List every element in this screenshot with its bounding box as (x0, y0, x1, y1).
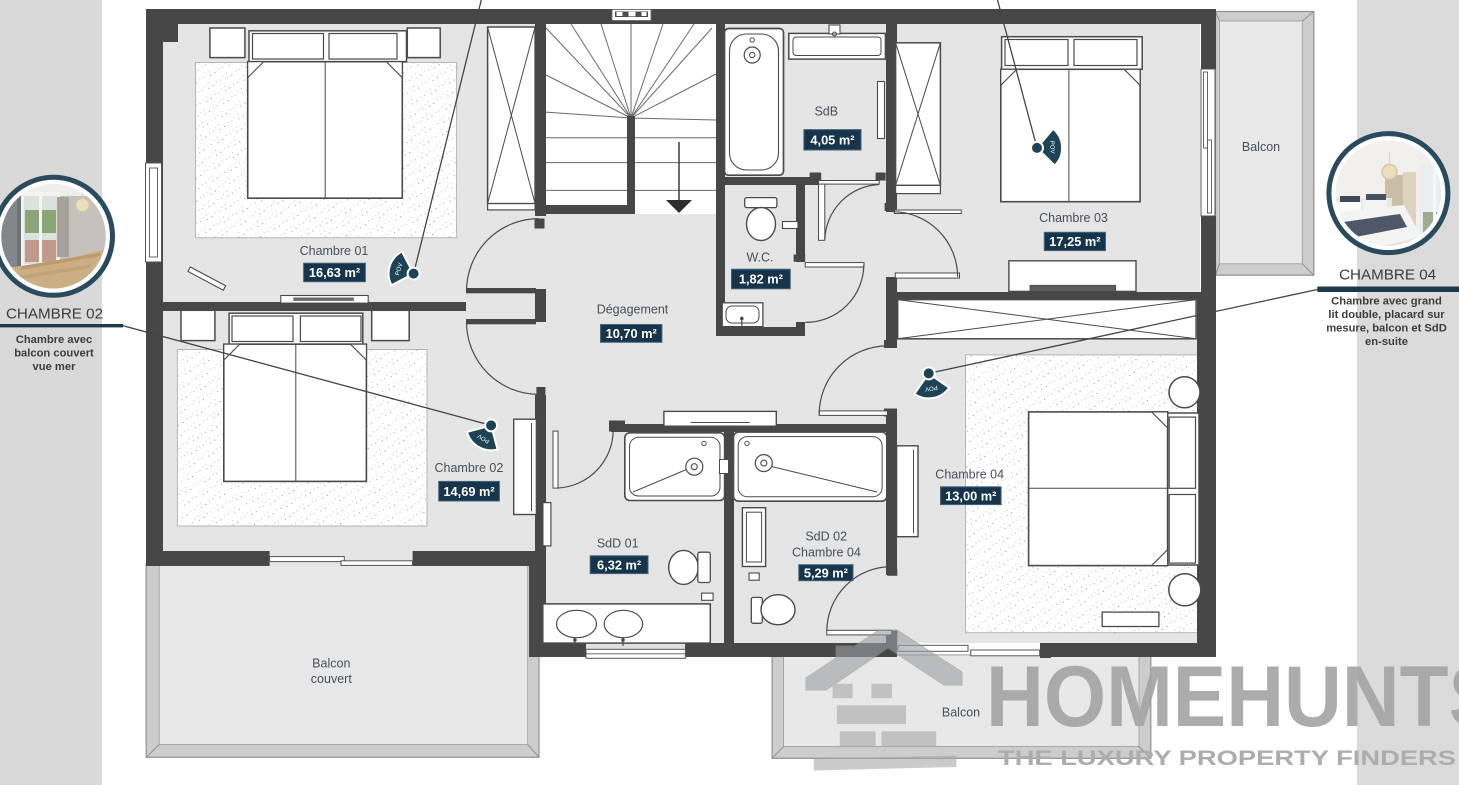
svg-text:couvert: couvert (311, 672, 353, 686)
svg-text:SdD 01: SdD 01 (597, 537, 639, 551)
svg-text:Chambre 04: Chambre 04 (935, 468, 1004, 482)
svg-text:HOMEHUNTS: HOMEHUNTS (986, 649, 1459, 745)
svg-text:SdB: SdB (814, 105, 838, 119)
svg-text:10,70 m²: 10,70 m² (606, 326, 657, 341)
svg-text:vue mer: vue mer (33, 361, 77, 373)
svg-text:W.C.: W.C. (746, 251, 773, 265)
svg-text:Balcon: Balcon (1242, 140, 1280, 154)
svg-text:Balcon: Balcon (312, 657, 350, 671)
svg-text:14,69 m²: 14,69 m² (443, 484, 494, 499)
svg-text:Dégagement: Dégagement (597, 303, 669, 317)
svg-text:Chambre 02: Chambre 02 (435, 461, 504, 475)
svg-text:CHAMBRE 04: CHAMBRE 04 (1339, 267, 1436, 284)
svg-text:CHAMBRE 02: CHAMBRE 02 (6, 306, 103, 323)
svg-text:16,63 m²: 16,63 m² (309, 265, 360, 280)
svg-text:lit double, placard sur: lit double, placard sur (1328, 309, 1445, 321)
svg-text:13,00 m²: 13,00 m² (945, 488, 996, 503)
svg-text:4,05 m²: 4,05 m² (810, 132, 854, 147)
svg-text:Chambre avec grand: Chambre avec grand (1331, 296, 1442, 308)
svg-text:17,25 m²: 17,25 m² (1049, 234, 1100, 249)
svg-text:THE LUXURY PROPERTY FINDERS: THE LUXURY PROPERTY FINDERS (998, 747, 1456, 770)
svg-text:en-suite: en-suite (1365, 336, 1408, 348)
svg-text:SdD 02: SdD 02 (805, 530, 847, 544)
svg-text:1,82 m²: 1,82 m² (739, 272, 783, 287)
svg-text:5,29 m²: 5,29 m² (804, 565, 848, 580)
svg-text:mesure, balcon et SdD: mesure, balcon et SdD (1326, 323, 1447, 335)
svg-text:6,32 m²: 6,32 m² (597, 557, 641, 572)
svg-text:Chambre 04: Chambre 04 (792, 546, 861, 560)
svg-text:Chambre avec: Chambre avec (16, 334, 93, 346)
svg-text:Chambre 03: Chambre 03 (1039, 211, 1108, 225)
svg-text:POV: POV (1048, 141, 1054, 154)
svg-text:Balcon: Balcon (942, 706, 980, 720)
svg-text:Chambre 01: Chambre 01 (300, 244, 369, 258)
svg-text:balcon couvert: balcon couvert (14, 348, 94, 360)
